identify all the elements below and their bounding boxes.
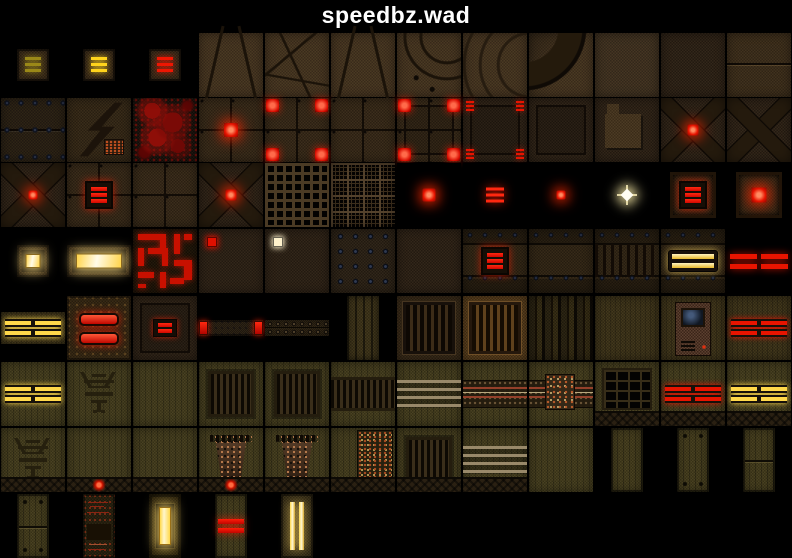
grid-cell xyxy=(462,32,528,97)
grid-cell xyxy=(660,32,726,97)
tex-banded-slats[interactable] xyxy=(595,229,659,293)
grid-cell xyxy=(264,361,330,427)
tex-panel-red-marker[interactable] xyxy=(199,229,263,293)
grid-cell xyxy=(264,427,330,493)
tex-wood-yellow-bars[interactable] xyxy=(1,362,65,426)
tex-metal-zigzag-bolt[interactable] xyxy=(67,98,131,162)
grid-cell xyxy=(66,493,132,558)
grid-cell xyxy=(330,32,396,97)
tex-red-circuit-pattern[interactable] xyxy=(133,229,197,293)
tex-red-bars-quad-wide[interactable] xyxy=(727,245,791,277)
grid-cell xyxy=(198,294,264,361)
grid-cell xyxy=(66,294,132,361)
tex-rock-keystone-large[interactable] xyxy=(331,33,395,97)
grid-cell xyxy=(330,294,396,361)
tex-floor-quad-plain[interactable] xyxy=(331,98,395,162)
tex-box-red-light[interactable] xyxy=(727,163,791,227)
grid-cell xyxy=(132,32,198,97)
grid-cell xyxy=(594,32,660,97)
grid-cell xyxy=(0,32,66,97)
tex-wood-tech-machinery[interactable] xyxy=(529,362,593,426)
tex-door-red-bars[interactable] xyxy=(215,494,247,558)
grid-cell xyxy=(132,97,198,162)
tex-panel-white-marker[interactable] xyxy=(265,229,329,293)
tex-cross-plain[interactable] xyxy=(727,98,791,162)
grid-cell xyxy=(396,97,462,162)
grid-cell xyxy=(528,162,594,228)
grid-cell xyxy=(462,162,528,228)
grid-cell xyxy=(198,32,264,97)
tex-rock-cobbles[interactable] xyxy=(265,33,329,97)
grid-cell xyxy=(264,228,330,294)
grid-cell xyxy=(330,427,396,493)
wad-title: speedbz.wad xyxy=(0,2,792,29)
grid-cell xyxy=(330,361,396,427)
grid-cell xyxy=(66,32,132,97)
grid-cell xyxy=(396,361,462,427)
grid-cell xyxy=(660,427,726,493)
grid-cell xyxy=(528,228,594,294)
tex-tech-console[interactable] xyxy=(661,296,725,360)
grid-cell xyxy=(528,294,594,361)
tex-wood-plain[interactable] xyxy=(133,362,197,426)
grid-cell xyxy=(660,162,726,228)
tex-switch-bars-yellow[interactable] xyxy=(83,49,115,81)
grid-cell xyxy=(660,294,726,361)
grid-cell xyxy=(198,228,264,294)
grid-cell xyxy=(66,228,132,294)
grid-cell xyxy=(594,361,660,427)
tex-red-light-small[interactable] xyxy=(529,163,593,227)
grid-cell xyxy=(264,493,330,558)
tex-panel-corner-bars[interactable] xyxy=(463,98,527,162)
tex-banded-plain[interactable] xyxy=(529,229,593,293)
grid-cell xyxy=(528,361,594,427)
grid-cell xyxy=(726,361,792,427)
tex-door-bolted-seam[interactable] xyxy=(17,494,49,558)
grid-cell xyxy=(726,294,792,361)
grid-cell xyxy=(0,294,66,361)
grid-cell xyxy=(132,228,198,294)
tex-cross-red-light-2[interactable] xyxy=(199,163,263,227)
grid-cell xyxy=(66,427,132,493)
grid-cell xyxy=(396,228,462,294)
tex-red-bars-quad-olive[interactable] xyxy=(727,296,791,360)
tex-wood-emblem[interactable] xyxy=(67,362,131,426)
tex-grate-coarse[interactable] xyxy=(265,163,329,227)
grid-cell xyxy=(396,32,462,97)
grid-cell xyxy=(462,361,528,427)
grid-cell xyxy=(198,361,264,427)
tex-wood-red-bars-base[interactable] xyxy=(661,362,725,426)
tex-yellow-lightbox-wide[interactable] xyxy=(67,245,131,277)
tex-door-yellow-columns[interactable] xyxy=(281,494,313,558)
tex-wood-tech-strip[interactable] xyxy=(463,362,527,426)
grid-cell xyxy=(462,97,528,162)
tex-beam-riveted[interactable] xyxy=(265,320,329,336)
grid-cell xyxy=(0,228,66,294)
tex-olive-plain[interactable] xyxy=(595,296,659,360)
tex-rock-arch-riveted[interactable] xyxy=(397,33,461,97)
tex-wall-machine[interactable] xyxy=(265,428,329,492)
grid-cell xyxy=(0,493,66,558)
tex-star-light[interactable] xyxy=(595,163,659,227)
grid-cell xyxy=(132,294,198,361)
tex-floor-corners-framed[interactable] xyxy=(397,98,461,162)
grid-cell xyxy=(330,228,396,294)
grid-cell xyxy=(264,162,330,228)
grid-cell xyxy=(132,427,198,493)
tex-metal-plain[interactable] xyxy=(397,229,461,293)
tex-door-circuitry[interactable] xyxy=(83,494,115,558)
grid-cell xyxy=(198,97,264,162)
tex-floor-quad-plain-2[interactable] xyxy=(133,163,197,227)
tex-slatted-column[interactable] xyxy=(347,296,379,360)
tex-switch-bars-red[interactable] xyxy=(149,49,181,81)
grid-cell xyxy=(660,361,726,427)
grid-cell xyxy=(726,97,792,162)
grid-cell xyxy=(198,427,264,493)
tex-floor-red-light-center[interactable] xyxy=(199,98,263,162)
grid-cell xyxy=(0,427,66,493)
tex-door-seam[interactable] xyxy=(743,428,775,492)
grid-cell xyxy=(396,427,462,493)
tex-rock-arch-band[interactable] xyxy=(529,33,593,97)
tex-riveted-plate[interactable] xyxy=(331,229,395,293)
tex-door-plain[interactable] xyxy=(611,428,643,492)
tex-wood-vent[interactable] xyxy=(199,362,263,426)
grid-cell xyxy=(594,294,660,361)
tex-yellow-lightbox-small[interactable] xyxy=(17,245,49,277)
grid-cell xyxy=(726,32,792,97)
grid-cell xyxy=(66,97,132,162)
tex-banded-red-bars[interactable] xyxy=(463,229,527,293)
tex-yellow-bars-quad[interactable] xyxy=(1,312,65,344)
grid-cell xyxy=(462,427,528,493)
tex-beam-red-ends[interactable] xyxy=(199,320,263,336)
grid-cell xyxy=(264,97,330,162)
tex-metal-noise-light[interactable] xyxy=(595,33,659,97)
grid-cell xyxy=(594,97,660,162)
tex-switch-bars-dim[interactable] xyxy=(17,49,49,81)
grid-cell xyxy=(726,162,792,228)
tex-banded-yellow-bars[interactable] xyxy=(661,229,725,293)
tex-wall-circuitry[interactable] xyxy=(331,428,395,492)
tex-door-yellow-slot[interactable] xyxy=(149,494,181,558)
grid-cell xyxy=(264,294,330,361)
grid-cell xyxy=(132,162,198,228)
tex-red-light-bars[interactable] xyxy=(463,163,527,227)
grid-cell xyxy=(330,162,396,228)
grid-cell xyxy=(264,32,330,97)
tex-wall-red-light[interactable] xyxy=(67,428,131,492)
tex-wall-plain[interactable] xyxy=(529,428,593,492)
grid-cell xyxy=(594,228,660,294)
tex-metal-noise-split[interactable] xyxy=(727,33,791,97)
tex-wall-plain-base[interactable] xyxy=(133,428,197,492)
grid-cell xyxy=(66,361,132,427)
grid-cell xyxy=(330,97,396,162)
grid-cell xyxy=(0,361,66,427)
tex-metal-noise-dark[interactable] xyxy=(661,33,725,97)
tex-wood-vent-wide[interactable] xyxy=(331,362,395,426)
tex-rock-arch-curves[interactable] xyxy=(463,33,527,97)
tex-grille-framed[interactable] xyxy=(397,296,461,360)
grid-cell xyxy=(462,294,528,361)
grid-cell xyxy=(528,97,594,162)
tex-blood-splatter[interactable] xyxy=(133,98,197,162)
grid-cell xyxy=(396,162,462,228)
grid-cell xyxy=(396,294,462,361)
tex-cross-red-small[interactable] xyxy=(1,163,65,227)
grid-cell xyxy=(0,97,66,162)
grid-cell xyxy=(594,162,660,228)
tex-wall-vent[interactable] xyxy=(397,428,461,492)
tex-cross-red-light[interactable] xyxy=(661,98,725,162)
tex-floor-red-corners[interactable] xyxy=(265,98,329,162)
tex-panel-patch[interactable] xyxy=(595,98,659,162)
tex-panel-framed-plain[interactable] xyxy=(529,98,593,162)
grid-cell xyxy=(726,427,792,493)
grid-cell xyxy=(0,162,66,228)
grid-cell xyxy=(528,32,594,97)
grid-cell xyxy=(198,493,264,558)
tex-grille-framed-bright[interactable] xyxy=(463,296,527,360)
grid-cell xyxy=(132,493,198,558)
tex-red-light-square[interactable] xyxy=(397,163,461,227)
tex-wall-emblem[interactable] xyxy=(1,428,65,492)
grid-cell xyxy=(594,427,660,493)
tex-wall-stripes[interactable] xyxy=(463,428,527,492)
tex-dark-planks[interactable] xyxy=(529,296,593,360)
tex-door-bolted[interactable] xyxy=(677,428,709,492)
tex-framed-red-bars[interactable] xyxy=(133,296,197,360)
grid-cell xyxy=(66,162,132,228)
grid-cell xyxy=(528,427,594,493)
grid-cell xyxy=(660,97,726,162)
grid-cell xyxy=(198,162,264,228)
tex-wood-window-base[interactable] xyxy=(595,362,659,426)
tex-box-red-bars[interactable] xyxy=(661,163,725,227)
grid-cell xyxy=(132,361,198,427)
texture-atlas: speedbz.wad xyxy=(0,0,792,558)
tex-riveted-panels[interactable] xyxy=(1,98,65,162)
grid-cell xyxy=(726,228,792,294)
grid-cell xyxy=(462,228,528,294)
tex-rock-keystone-small[interactable] xyxy=(199,33,263,97)
grid-cell xyxy=(660,228,726,294)
tex-ornate-red-capsules[interactable] xyxy=(67,296,131,360)
tex-grate-fine[interactable] xyxy=(331,163,395,227)
tex-wood-vent-2[interactable] xyxy=(265,362,329,426)
tex-wall-machine-light[interactable] xyxy=(199,428,263,492)
tex-wood-yellow-bars-base[interactable] xyxy=(727,362,791,426)
tex-wood-stripes[interactable] xyxy=(397,362,461,426)
tex-floor-red-bars-box[interactable] xyxy=(67,163,131,227)
